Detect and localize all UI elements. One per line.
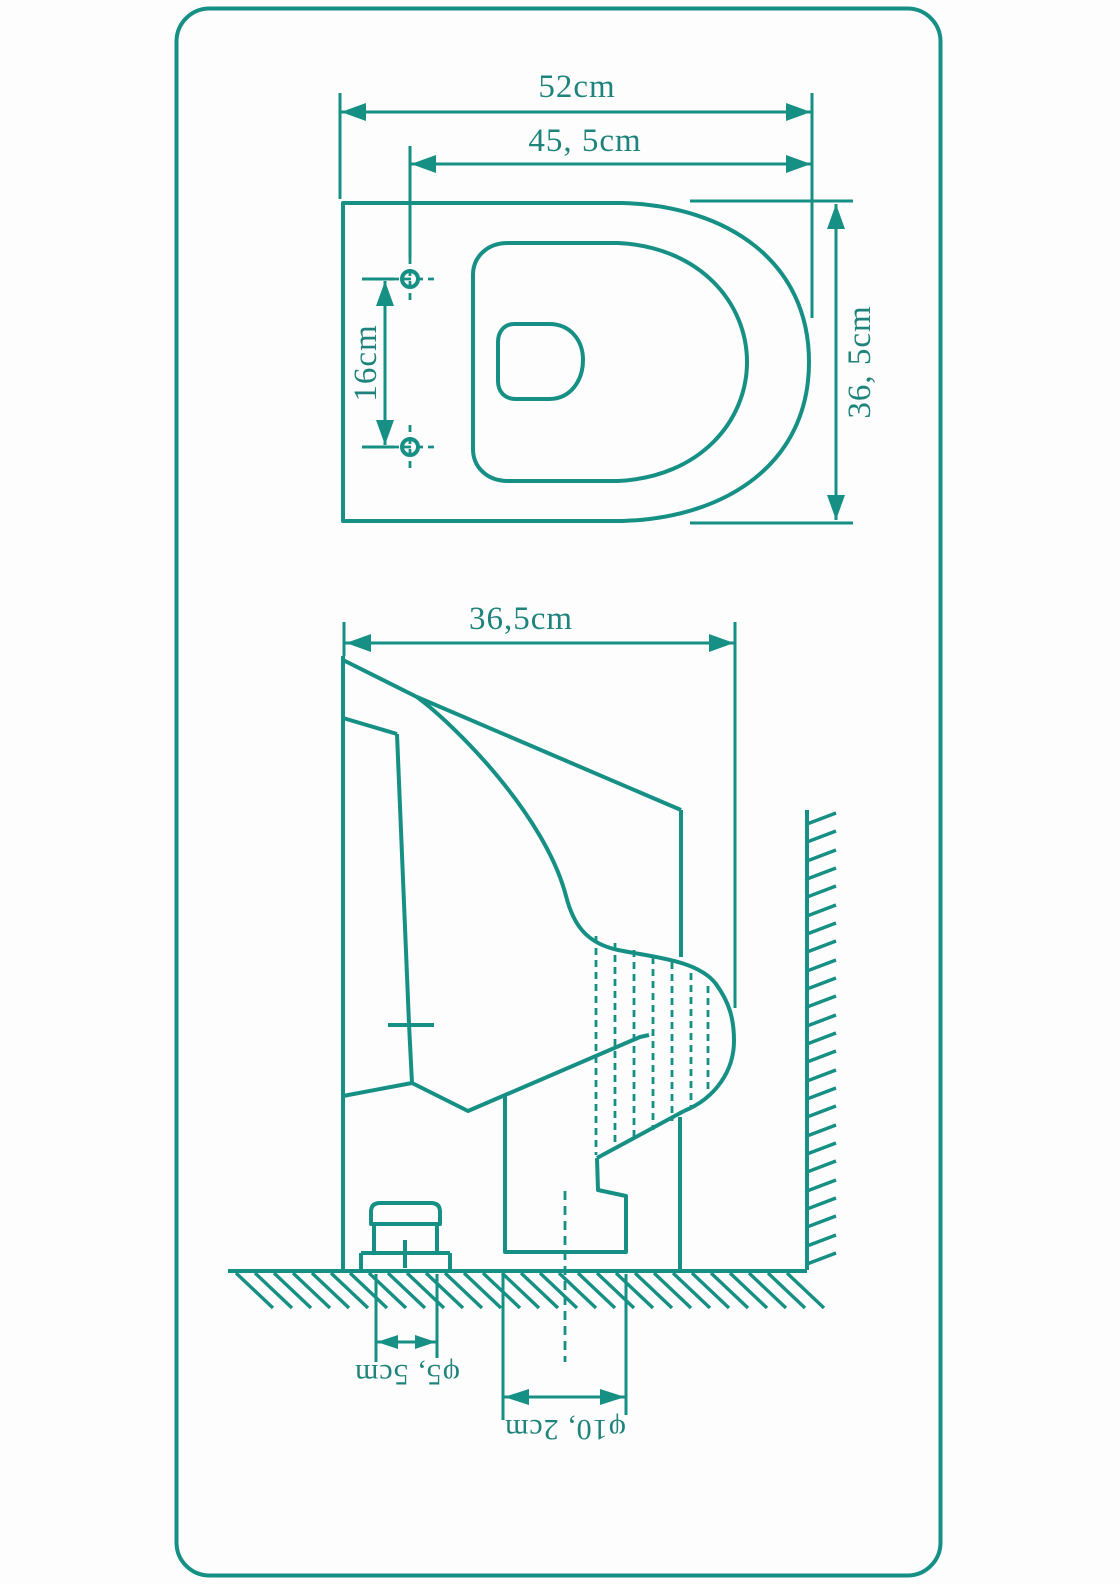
dimension-side-depth-label: 36,5cm (469, 601, 573, 637)
trapway-hidden-lines (596, 936, 708, 1155)
rim-top-slant (417, 697, 681, 810)
water-inlet (361, 1203, 450, 1270)
dimension-hole-spacing: 16cm (348, 279, 394, 447)
wall-hatching (807, 813, 836, 1264)
arrowhead-up-icon (827, 204, 845, 229)
back-inner-edge (397, 734, 412, 1083)
seat-inner-ring (473, 243, 747, 481)
floor-hatching (236, 1273, 824, 1308)
mounting-hole-top (392, 257, 434, 301)
arrowhead-left-icon (411, 155, 436, 173)
hole-crosshair-icon (392, 425, 434, 469)
dimension-seat-width-label: 45, 5cm (528, 123, 641, 159)
dimension-seat-width: 45, 5cm (410, 123, 812, 257)
arrowhead-right-icon (600, 1389, 625, 1405)
floor (228, 1271, 824, 1308)
technical-drawing-svg: 52cm 45, 5cm 16cm (0, 0, 1120, 1584)
dimension-side-depth: 36,5cm (344, 601, 735, 1008)
dimension-outlet-diameter-label: φ10, 2cm (504, 1413, 626, 1446)
mounting-hole-bottom (392, 425, 434, 469)
extension-lines (344, 622, 735, 1008)
drawing-page: 52cm 45, 5cm 16cm (0, 0, 1120, 1584)
arrowhead-left-icon (504, 1389, 529, 1405)
pan-outer-outline (343, 203, 809, 521)
arrowhead-down-icon (376, 420, 394, 445)
side-view: 36,5cm (228, 601, 836, 1446)
arrowhead-right-icon (786, 155, 811, 173)
dimension-overall-width-label: 52cm (538, 69, 615, 105)
hole-crosshair-icon (392, 257, 434, 301)
arrowhead-right-icon (709, 634, 734, 652)
underside-back-slant (343, 1083, 412, 1096)
back-inner-slant (343, 718, 397, 734)
wall (807, 810, 836, 1270)
arrowhead-up-icon (376, 281, 394, 306)
pan-side-profile (343, 656, 734, 1271)
arrowhead-right-icon (786, 103, 811, 121)
arrowhead-down-icon (827, 495, 845, 520)
bowl-front-curve (417, 697, 734, 1111)
bowl-opening (498, 324, 583, 399)
inlet-cap (371, 1203, 440, 1224)
dimension-inlet-diameter-label: φ5, 5cm (354, 1358, 460, 1391)
dimension-overall-depth-label: 36, 5cm (842, 305, 878, 418)
top-view: 52cm 45, 5cm 16cm (340, 69, 878, 523)
extension-lines (690, 201, 853, 523)
underside-edge (412, 1035, 649, 1111)
arrowhead-left-icon (341, 103, 366, 121)
arrowhead-left-icon (377, 1335, 398, 1349)
arrowhead-left-icon (346, 634, 371, 652)
arrowhead-right-icon (415, 1335, 436, 1349)
top-cap-edge (343, 660, 417, 697)
dimension-overall-depth: 36, 5cm (690, 201, 878, 523)
dimension-hole-spacing-label: 16cm (348, 324, 384, 401)
